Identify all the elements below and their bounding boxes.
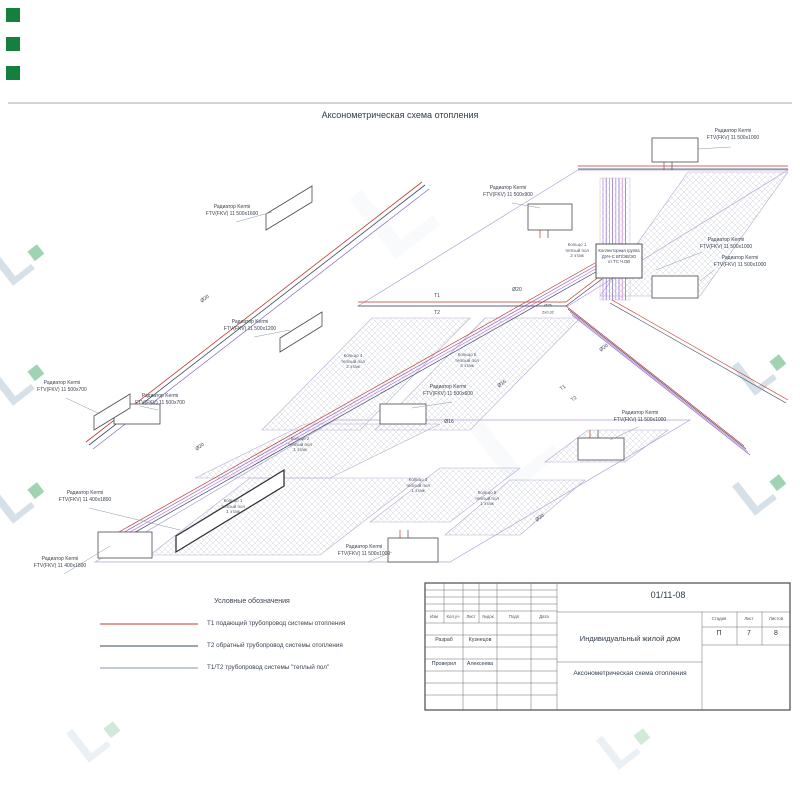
- radiator-box: [388, 538, 438, 562]
- scheme-drawing: [0, 0, 800, 800]
- titleblock-col-list: Лист: [466, 614, 475, 619]
- radiator-label: Радиатор KermiFTV(FKV) 11 500x1000: [707, 128, 759, 141]
- titleblock-col-ndok: №док: [482, 614, 493, 619]
- sheet-label: Лист: [744, 616, 753, 621]
- radiator-label: Радиатор KermiFTV(FKV) 11 500x700: [37, 380, 87, 393]
- radiator-box: [652, 138, 698, 162]
- sheet-value: 7: [747, 630, 751, 637]
- radiator-label: Радиатор KermiFTV(FKV) 11 500x900: [483, 185, 533, 198]
- titleblock-col-podp: Подп: [509, 614, 519, 619]
- drawing-sheet: L L L L L L L L L: [0, 0, 800, 800]
- radiator-label: Радиатор KermiFTV(FKV) 11 500x700: [135, 393, 185, 406]
- radiator-box: [266, 186, 312, 230]
- legend-item-floor: Т1/Т2 трубопровод системы "теплый пол": [207, 664, 329, 671]
- stage-value: П: [716, 630, 721, 637]
- legend-item-t2: Т2 обратный трубопровод системы отоплени…: [207, 642, 343, 649]
- loop-label: Кольцо 5теплый пол1 этаж: [475, 490, 499, 507]
- radiator-label: Радиатор KermiFTV(FKV) 11 400x1800: [59, 490, 111, 503]
- loop-label: Кольцо 4теплый пол2 этаж: [341, 353, 365, 370]
- radiator-label: Радиатор KermiFTV(FKV) 11 500x1200: [224, 319, 276, 332]
- legend-lines: [100, 624, 198, 668]
- radiator-label: Радиатор KermiFTV(FKV) 11 500x1600: [206, 204, 258, 217]
- legend-item-t1: Т1 подающий трубопровод системы отоплени…: [207, 620, 345, 627]
- pipe-diameter-label: Ø20: [512, 287, 521, 293]
- manifold-label: Коллекторная группаДУН-С ВП/ЭВ/ЭОот ТС Ч…: [596, 248, 642, 265]
- radiator-box: [578, 438, 624, 460]
- radiator-box: [528, 204, 572, 230]
- pipe-t2: [566, 279, 602, 306]
- signature-name: Кузнецов: [469, 637, 492, 643]
- pipe-t2: [610, 303, 786, 403]
- loop-label: Кольцо 2теплый пол1 этаж: [288, 436, 312, 453]
- drawing-name: Аксонометрическая схема отопления: [573, 670, 686, 677]
- radiator-box: [98, 532, 152, 558]
- titleblock-col-koluch: Кол.уч: [447, 614, 460, 619]
- stage-label: Стадия: [712, 616, 727, 621]
- radiator-label: Радиатор KermiFTV(FKV) 11 400x1800: [34, 556, 86, 569]
- pipe-t1: [612, 300, 788, 400]
- project-name: Индивидуальный жилой дом: [580, 634, 680, 643]
- radiator-label: Радиатор KermiFTV(FKV) 11 500x1000: [338, 544, 390, 557]
- loop-label: Кольцо 1теплый пол2 этаж: [565, 242, 589, 259]
- loop-label: Кольцо 3теплый пол1 этаж: [406, 477, 430, 494]
- titleblock-col-izm: Изм: [430, 614, 438, 619]
- doc-number: 01/11-08: [651, 590, 686, 600]
- title-block-grid: [425, 583, 790, 710]
- signature-role: Разраб: [435, 637, 453, 643]
- legend-title: Условные обозначения: [214, 598, 290, 605]
- signature-name: Алексеева: [467, 661, 493, 667]
- signature-role: Проверил: [432, 661, 456, 667]
- titleblock-col-data: Дата: [539, 614, 549, 619]
- radiator-label: Радиатор KermiFTV(FKV) 11 500x1000: [714, 255, 766, 268]
- page-title: Аксонометрическая схема отопления: [322, 110, 479, 120]
- sheets-value: 8: [774, 630, 778, 637]
- radiator-box: [652, 276, 698, 298]
- loop-label: Кольцо 1теплый пол1 этаж: [221, 498, 245, 515]
- radiator-label: Радиатор KermiFTV(FKV) 11 500x1000: [614, 410, 666, 423]
- pipe-flow-label: Т2: [434, 310, 440, 316]
- pipe-diameter-label: Ø16: [444, 419, 453, 425]
- radiator-label: Радиатор KermiFTV(FKV) 11 500x1000: [700, 237, 752, 250]
- pipe-diameter-label: Ø25: [544, 303, 552, 308]
- loop-label: Кольцо 5теплый пол2 этаж: [455, 352, 479, 369]
- radiator-box: [280, 312, 322, 352]
- pipe-spec-label: 2x0,32: [542, 310, 554, 315]
- sheets-label: Листов: [769, 616, 783, 621]
- pipe-flow-label: Т1: [434, 293, 440, 299]
- pipe-t1: [566, 306, 744, 446]
- radiator-label: Радиатор KermiFTV(FKV) 11 500x600: [423, 384, 473, 397]
